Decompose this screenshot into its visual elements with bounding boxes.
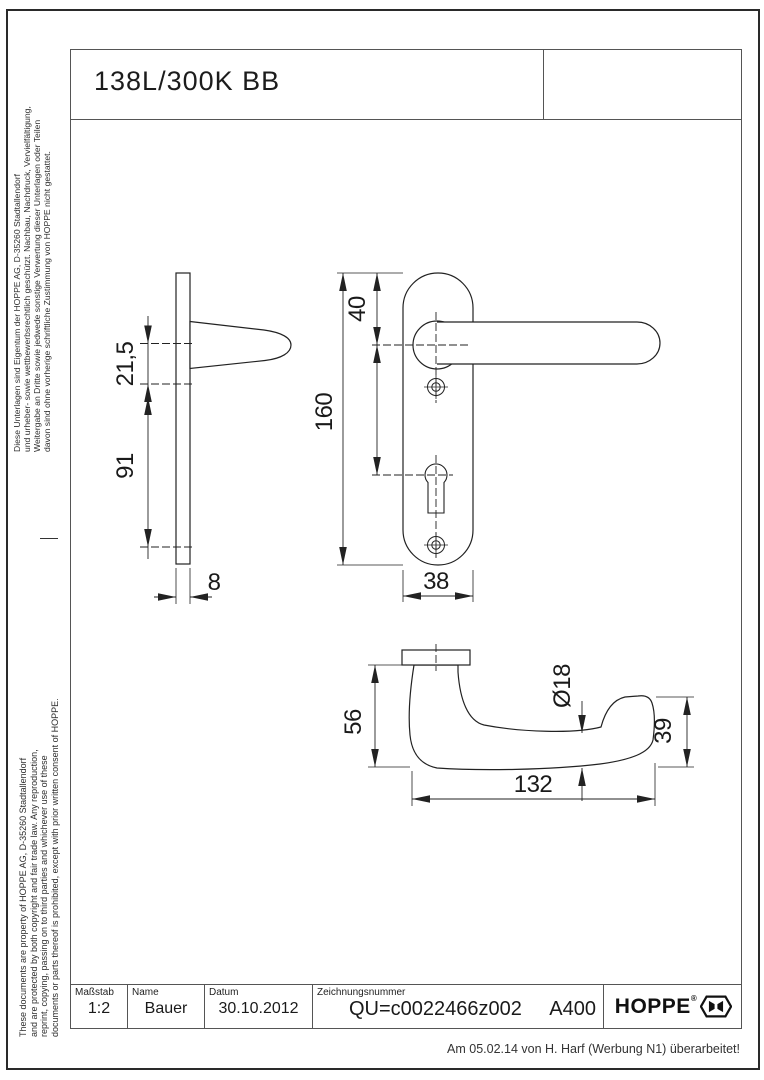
name-value: Bauer xyxy=(128,1000,204,1018)
side-handle-grip xyxy=(190,322,291,369)
registered-mark: ® xyxy=(691,994,697,1003)
technical-drawing: 21,5 91 8 160 40 38 xyxy=(70,119,742,984)
format-value: A400 xyxy=(549,998,603,1021)
dim-length-label: 132 xyxy=(514,771,553,798)
name-label: Name xyxy=(128,985,204,998)
name-cell: Name Bauer xyxy=(128,985,205,1028)
dim-neck-label: 21,5 xyxy=(112,341,139,386)
side-view-drawing: 21,5 91 8 xyxy=(112,273,291,604)
dim-plate-width-label: 38 xyxy=(423,568,449,595)
date-cell: Datum 30.10.2012 xyxy=(205,985,313,1028)
drawing-sheet: { "page": { "title": "138L/300K BB", "re… xyxy=(0,0,764,1080)
dim-lower-label: 91 xyxy=(112,453,139,479)
legal-en-line3: reprint, copying, passing on to third pa… xyxy=(39,647,50,1037)
brand-wordmark: HOPPE® xyxy=(615,995,697,1019)
dim-plate-height-label: 160 xyxy=(311,393,338,432)
legal-en-line4: documents or parts thereof is prohibited… xyxy=(50,647,61,1037)
legal-de-line4: davon sind ohne vorherige schriftliche Z… xyxy=(43,40,53,452)
front-backplate xyxy=(403,273,473,565)
page-title: 138L/300K BB xyxy=(94,66,280,97)
front-handle-lever xyxy=(437,322,660,364)
legal-note-german: Diese Unterlagen sind Eigentum der HOPPE… xyxy=(13,40,53,452)
dim-plate-thickness-label: 8 xyxy=(208,569,221,596)
dim-grip-diameter-label: Ø18 xyxy=(549,664,576,708)
scale-cell: Maßstab 1:2 xyxy=(71,985,128,1028)
legal-note-english: These documents are property of HOPPE AG… xyxy=(18,647,61,1037)
drawing-number-cell: Zeichnungsnummer QU=c0022466z002 A400 xyxy=(313,985,604,1028)
hoppe-hexagon-icon xyxy=(700,995,732,1018)
dim-height-label: 56 xyxy=(340,709,367,735)
legal-en-line1: These documents are property of HOPPE AG… xyxy=(18,647,29,1037)
front-view-drawing: 160 40 38 xyxy=(311,273,660,602)
sheet-center-mark xyxy=(40,538,58,539)
top-view-drawing: 56 Ø18 39 132 xyxy=(340,644,694,806)
drawing-number-value: QU=c0022466z002 xyxy=(313,998,522,1021)
date-value: 30.10.2012 xyxy=(205,1000,312,1018)
revision-note: Am 05.02.14 von H. Harf (Werbung N1) übe… xyxy=(447,1042,740,1056)
side-plate xyxy=(176,273,190,564)
legal-en-line2: and are protected by both copyright and … xyxy=(29,647,40,1037)
brand-cell: HOPPE® xyxy=(604,985,743,1028)
dim-end-height-label: 39 xyxy=(650,718,677,744)
scale-value: 1:2 xyxy=(71,1000,127,1018)
top-handle-body xyxy=(409,665,654,770)
drawing-number-label: Zeichnungsnummer xyxy=(313,985,603,998)
title-block: Maßstab 1:2 Name Bauer Datum 30.10.2012 … xyxy=(70,984,742,1029)
scale-label: Maßstab xyxy=(71,985,127,998)
dim-top-to-handle-label: 40 xyxy=(344,296,371,322)
header-divider-line xyxy=(543,49,544,119)
date-label: Datum xyxy=(205,985,312,998)
